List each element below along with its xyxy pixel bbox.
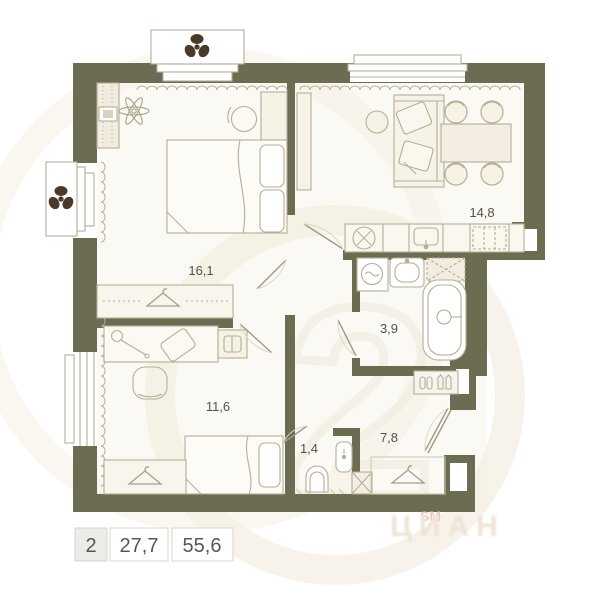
bed-icon <box>167 140 287 233</box>
sink-icon <box>390 258 424 287</box>
room-label-kitchen-living: 14,8 <box>469 205 494 220</box>
chair-icon <box>445 101 467 123</box>
wall-top <box>73 63 545 83</box>
room-label-wc: 1,4 <box>300 441 318 456</box>
toilet-icon <box>306 466 328 492</box>
washing-machine-icon <box>357 258 388 291</box>
legend: 2 27,7 55,6 <box>75 528 233 561</box>
pillow-icon <box>260 145 284 187</box>
wall-partition-bedroom1-kitchen <box>287 83 295 215</box>
room-label-bedroom-1: 16,1 <box>188 263 213 278</box>
window-kitchen-top <box>348 55 467 82</box>
dresser-icon <box>218 330 247 358</box>
bed-icon <box>185 436 283 494</box>
pillow-icon <box>259 443 280 487</box>
shoe-shelf-icon <box>414 371 458 394</box>
floor-plan-canvas: 2 <box>0 0 600 600</box>
wardrobe-icon <box>104 460 186 494</box>
wardrobe-icon <box>97 285 233 318</box>
chair-icon <box>445 163 467 185</box>
legend-living-area: 27,7 <box>120 535 159 557</box>
sink-icon <box>336 442 352 472</box>
room-label-hallway: 7,8 <box>380 430 398 445</box>
room-label-bedroom-2: 11,6 <box>206 399 230 414</box>
sofa-icon <box>394 95 444 187</box>
bathtub-icon <box>423 280 466 360</box>
chair-icon <box>481 163 503 185</box>
pillow-icon <box>260 190 284 232</box>
nightstand-icon <box>261 92 287 140</box>
window-bedroom2-left <box>65 352 97 446</box>
brand-watermark: SM ЦИАН <box>390 508 505 543</box>
wall-partition-bedroom2-hall <box>285 315 295 498</box>
chair-icon <box>481 101 503 123</box>
legend-total-area: 55,6 <box>183 535 222 557</box>
pouf-icon <box>366 111 388 133</box>
wardrobe-icon <box>97 83 119 148</box>
shaft-icon <box>352 472 372 494</box>
floor-plan-page: 2 <box>0 0 600 600</box>
shaft-icon <box>450 463 467 491</box>
cabinet-icon <box>427 258 465 281</box>
room-label-bathroom: 3,9 <box>380 321 398 336</box>
legend-rooms-count: 2 <box>85 535 96 557</box>
kitchen-counter <box>345 224 524 252</box>
desk-icon <box>104 326 218 363</box>
tv-stand-icon <box>297 93 311 190</box>
vent-block-left <box>46 162 97 238</box>
watermark-brand: ЦИАН <box>390 510 505 543</box>
vent-block-top <box>151 30 244 81</box>
